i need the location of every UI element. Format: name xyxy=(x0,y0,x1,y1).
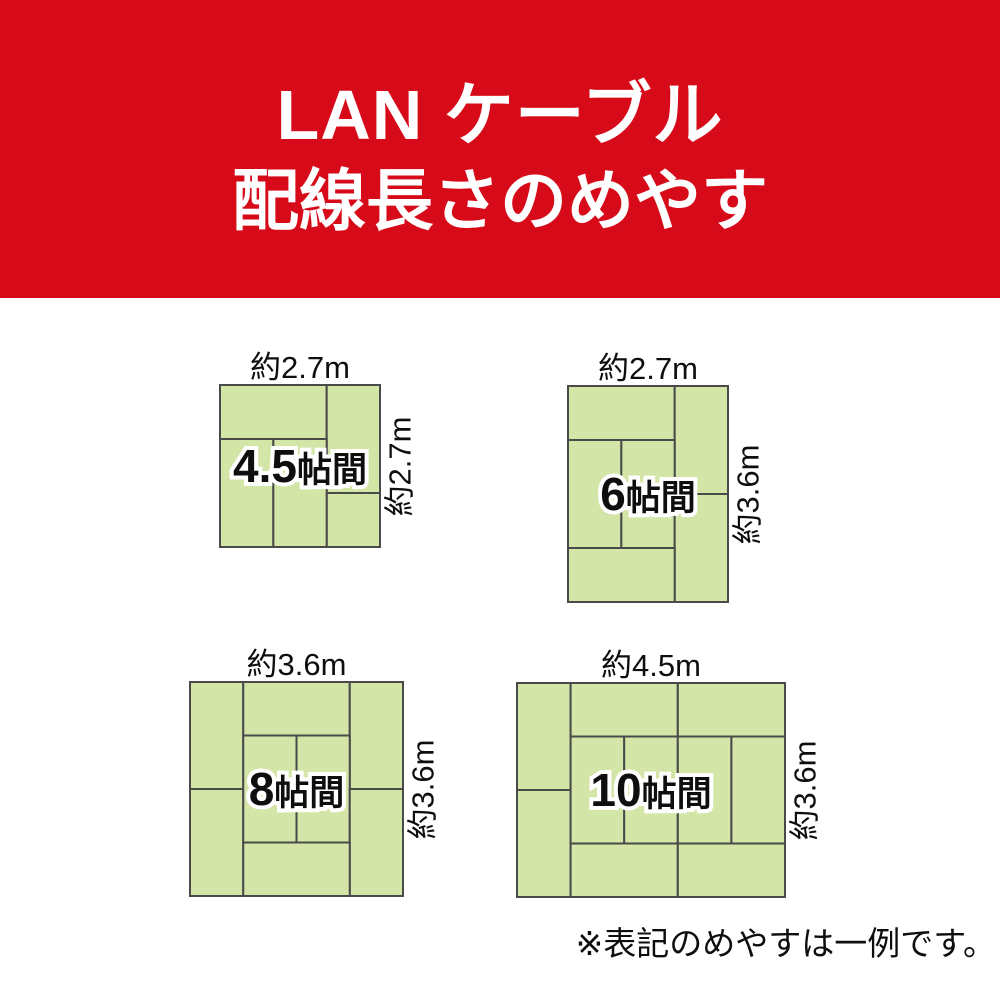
tatami-mat xyxy=(678,844,785,898)
tatami-mat xyxy=(517,683,571,790)
width-dimension-label: 約2.7m xyxy=(528,352,768,386)
tatami-mat xyxy=(731,737,785,844)
tatami-mats-svg xyxy=(568,386,728,602)
tatami-mat xyxy=(675,386,728,494)
footnote-disclaimer: ※表記のめやすは一例です。 xyxy=(576,924,996,964)
header-banner: LAN ケーブル 配線長さのめやす xyxy=(0,0,1000,298)
page-title-line-1: LAN ケーブル xyxy=(276,79,723,153)
room-diagram-6jo: 6帖間6帖間 xyxy=(568,386,728,602)
tatami-mat xyxy=(190,789,243,896)
tatami-mat xyxy=(190,682,243,789)
width-dimension-label: 約2.7m xyxy=(180,351,420,385)
tatami-mat xyxy=(621,440,674,548)
tatami-mat xyxy=(327,385,380,493)
tatami-mat xyxy=(243,682,350,736)
height-dimension-text: 約3.6m xyxy=(408,739,439,839)
tatami-mat xyxy=(568,386,675,440)
tatami-mat xyxy=(624,737,678,844)
tatami-mats-svg xyxy=(220,385,380,547)
width-dimension-label: 約4.5m xyxy=(477,649,825,683)
tatami-mat xyxy=(571,683,678,737)
room-diagram-8jo: 8帖間8帖間 xyxy=(190,682,403,896)
tatami-mat xyxy=(350,682,403,789)
height-dimension-text: 約3.6m xyxy=(733,444,764,544)
room-diagram-10jo: 10帖間10帖間 xyxy=(517,683,785,897)
height-dimension-label: 約2.7m xyxy=(378,385,422,547)
tatami-mat xyxy=(571,844,678,898)
tatami-mat xyxy=(517,790,571,897)
tatami-mat xyxy=(678,737,732,844)
room-diagram-4-5jo: 4.5帖間4.5帖間 xyxy=(220,385,380,547)
tatami-mat xyxy=(297,736,350,843)
tatami-mat xyxy=(327,493,380,547)
tatami-mat xyxy=(350,789,403,896)
height-dimension-label: 約3.6m xyxy=(726,386,770,602)
tatami-mat xyxy=(220,439,273,547)
tatami-mat xyxy=(220,385,327,439)
height-dimension-label: 約3.6m xyxy=(401,682,445,896)
tatami-mat xyxy=(273,439,326,547)
tatami-mat xyxy=(568,440,621,548)
infographic-canvas: LAN ケーブル 配線長さのめやす 4.5帖間4.5帖間約2.7m約2.7m6帖… xyxy=(0,0,1000,1000)
height-dimension-text: 約3.6m xyxy=(790,740,821,840)
height-dimension-label: 約3.6m xyxy=(783,683,827,897)
tatami-mat xyxy=(675,494,728,602)
height-dimension-text: 約2.7m xyxy=(385,416,416,516)
tatami-mat xyxy=(678,683,785,737)
tatami-mat xyxy=(571,737,625,844)
tatami-mats-svg xyxy=(190,682,403,896)
width-dimension-label: 約3.6m xyxy=(150,648,443,682)
tatami-mats-svg xyxy=(517,683,785,897)
page-title-line-2: 配線長さのめやす xyxy=(232,167,768,237)
tatami-mat xyxy=(243,736,296,843)
tatami-mat xyxy=(243,843,350,897)
tatami-mat xyxy=(568,548,675,602)
